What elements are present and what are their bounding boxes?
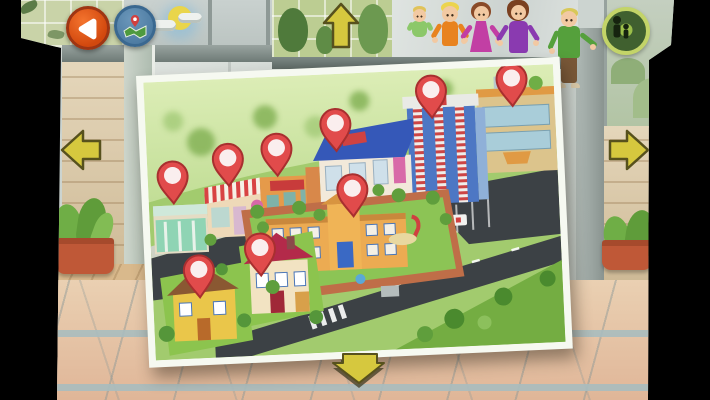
hospital-building: [402, 93, 489, 205]
woman-hand: [533, 40, 539, 46]
leaf-decoration: [19, 0, 39, 15]
grocery-store-building: [153, 204, 209, 254]
character-woman[interactable]: [498, 0, 538, 62]
flower-pot: [602, 240, 652, 270]
man-shoe: [571, 83, 580, 88]
man-pants: [561, 58, 577, 83]
glass-reflection: [633, 78, 673, 118]
woman-hand: [497, 40, 503, 46]
left-arrow-icon[interactable]: [60, 128, 102, 172]
down-arrow-icon[interactable]: [330, 352, 386, 388]
man-hand: [590, 44, 596, 50]
flower-pot: [56, 238, 114, 274]
planter-right: [602, 210, 652, 270]
town-map-photo[interactable]: [136, 57, 573, 368]
map-with-pin-icon: [122, 13, 148, 39]
man-head: [561, 11, 577, 27]
baby-onesie: [412, 21, 427, 37]
baby-head: [413, 9, 426, 22]
man-sweater: [558, 26, 580, 58]
girl-hand: [461, 38, 467, 44]
woman-top: [509, 21, 528, 53]
woman-arm: [496, 24, 510, 42]
glass-reflection: [611, 58, 645, 84]
man-hand: [549, 48, 555, 54]
window-frame: [208, 0, 212, 45]
character-baby[interactable]: [408, 6, 432, 40]
cloud-icon: [178, 13, 202, 23]
planter-left: [54, 198, 116, 274]
painted-tree: [358, 4, 388, 54]
leaf-decoration: [47, 28, 65, 41]
game-screen: { "screen": { "kind": "town-map-selectio…: [0, 0, 710, 400]
game-scene: [0, 0, 710, 400]
boy-shirt: [442, 21, 458, 46]
woman-head: [511, 5, 526, 20]
adult-and-child-silhouette-icon: [602, 7, 650, 55]
right-arrow-icon[interactable]: [608, 128, 650, 172]
boy-hand: [432, 37, 438, 43]
back-button[interactable]: [66, 6, 110, 50]
back-triangle-icon: [73, 14, 103, 44]
character-girl[interactable]: [464, 2, 498, 58]
up-arrow-icon[interactable]: [322, 2, 360, 50]
map-view-button[interactable]: [114, 5, 156, 47]
character-boy[interactable]: [434, 2, 466, 54]
girl-head: [474, 6, 489, 21]
boy-head: [442, 6, 458, 22]
painted-tree: [278, 8, 308, 52]
window-frame: [266, 0, 270, 45]
